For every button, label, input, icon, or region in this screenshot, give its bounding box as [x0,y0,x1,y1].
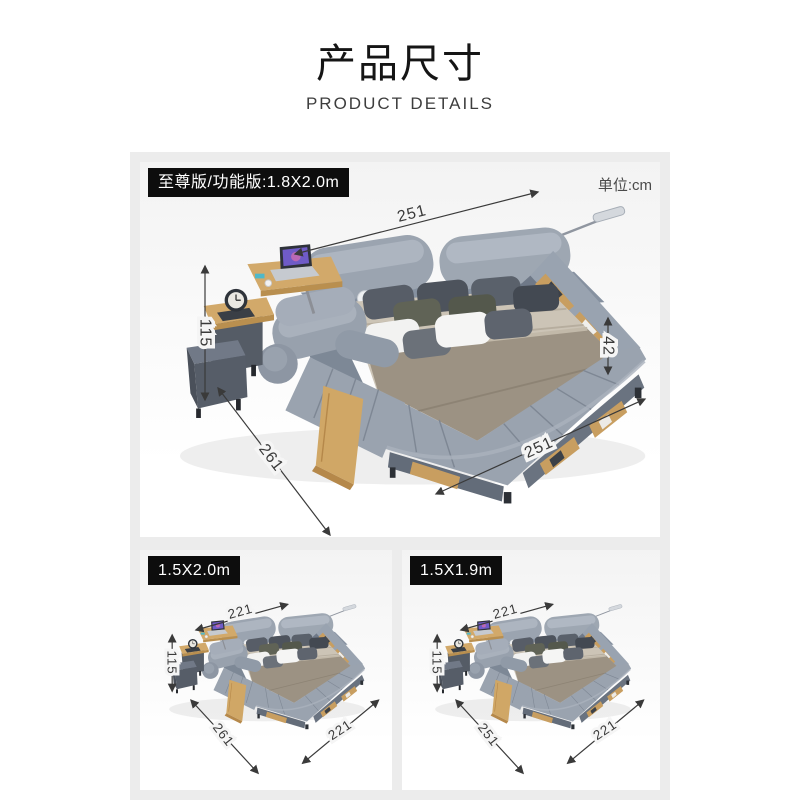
dim-bottom-right: 221 [590,717,619,743]
dim-top: 251 [396,202,429,226]
bed-illustration [435,604,631,729]
product-details-page: 产品尺寸 PRODUCT DETAILS 至尊版/功能版:1.8X2.0m 单位… [0,0,800,800]
dimensions-board: 至尊版/功能版:1.8X2.0m 单位:cm 251 115 42 261 25… [130,152,670,800]
page-subtitle: PRODUCT DETAILS [0,94,800,114]
dim-left: 115 [197,319,214,348]
variant-badge-main: 至尊版/功能版:1.8X2.0m [148,168,349,197]
dim-top: 221 [491,601,519,622]
page-header: 产品尺寸 PRODUCT DETAILS [0,42,800,114]
bed-scene-bl: 221 115 261 221 [140,550,392,790]
variant-badge-br: 1.5X1.9m [410,556,502,585]
dim-left: 115 [430,650,445,674]
bed-illustration [169,604,365,729]
dim-left: 115 [165,650,180,674]
dim-right: 42 [600,336,617,356]
panel-1.5x1.9: 1.5X1.9m 221 115 251 221 [402,550,660,790]
unit-label: 单位:cm [598,174,652,195]
bed-scene-br: 221 115 251 221 [402,550,660,790]
bed-illustration [180,206,646,504]
variant-badge-bl: 1.5X2.0m [148,556,240,585]
panel-1.5x2.0: 1.5X2.0m 221 115 261 221 [140,550,392,790]
page-title: 产品尺寸 [0,42,800,86]
panel-main-1.8x2.0: 至尊版/功能版:1.8X2.0m 单位:cm 251 115 42 261 25… [140,162,660,537]
bed-scene-main: 251 115 42 261 251 [140,162,660,537]
dim-bottom-right: 221 [325,717,354,743]
